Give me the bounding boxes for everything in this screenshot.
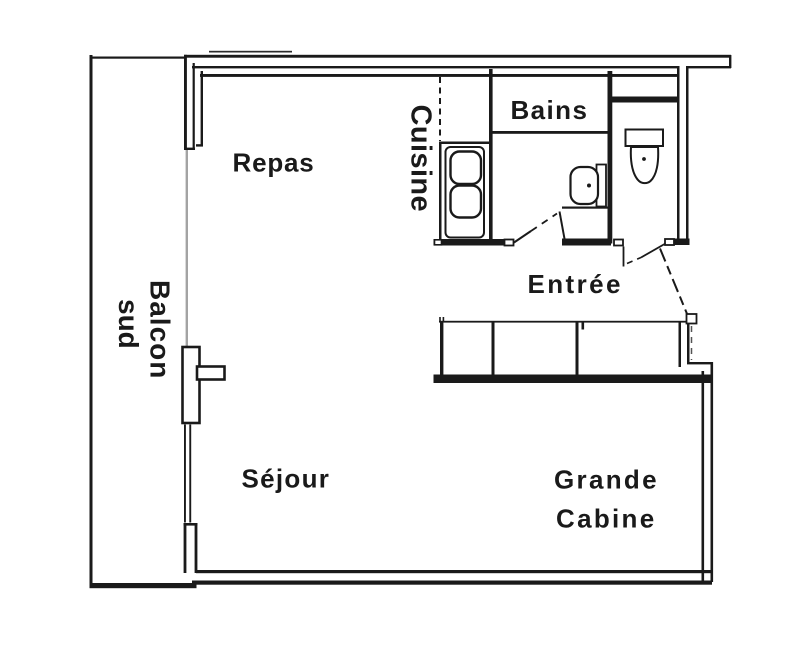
svg-text:Cabine: Cabine bbox=[556, 504, 656, 534]
svg-text:Séjour: Séjour bbox=[242, 464, 331, 494]
svg-text:Repas: Repas bbox=[233, 148, 315, 178]
svg-text:Entrée: Entrée bbox=[528, 269, 623, 299]
svg-text:Balcon: Balcon bbox=[145, 280, 176, 379]
svg-text:Bains: Bains bbox=[511, 95, 589, 125]
svg-text:sud: sud bbox=[113, 299, 144, 349]
svg-text:Grande: Grande bbox=[554, 465, 659, 495]
svg-text:Cuisine: Cuisine bbox=[405, 105, 437, 213]
